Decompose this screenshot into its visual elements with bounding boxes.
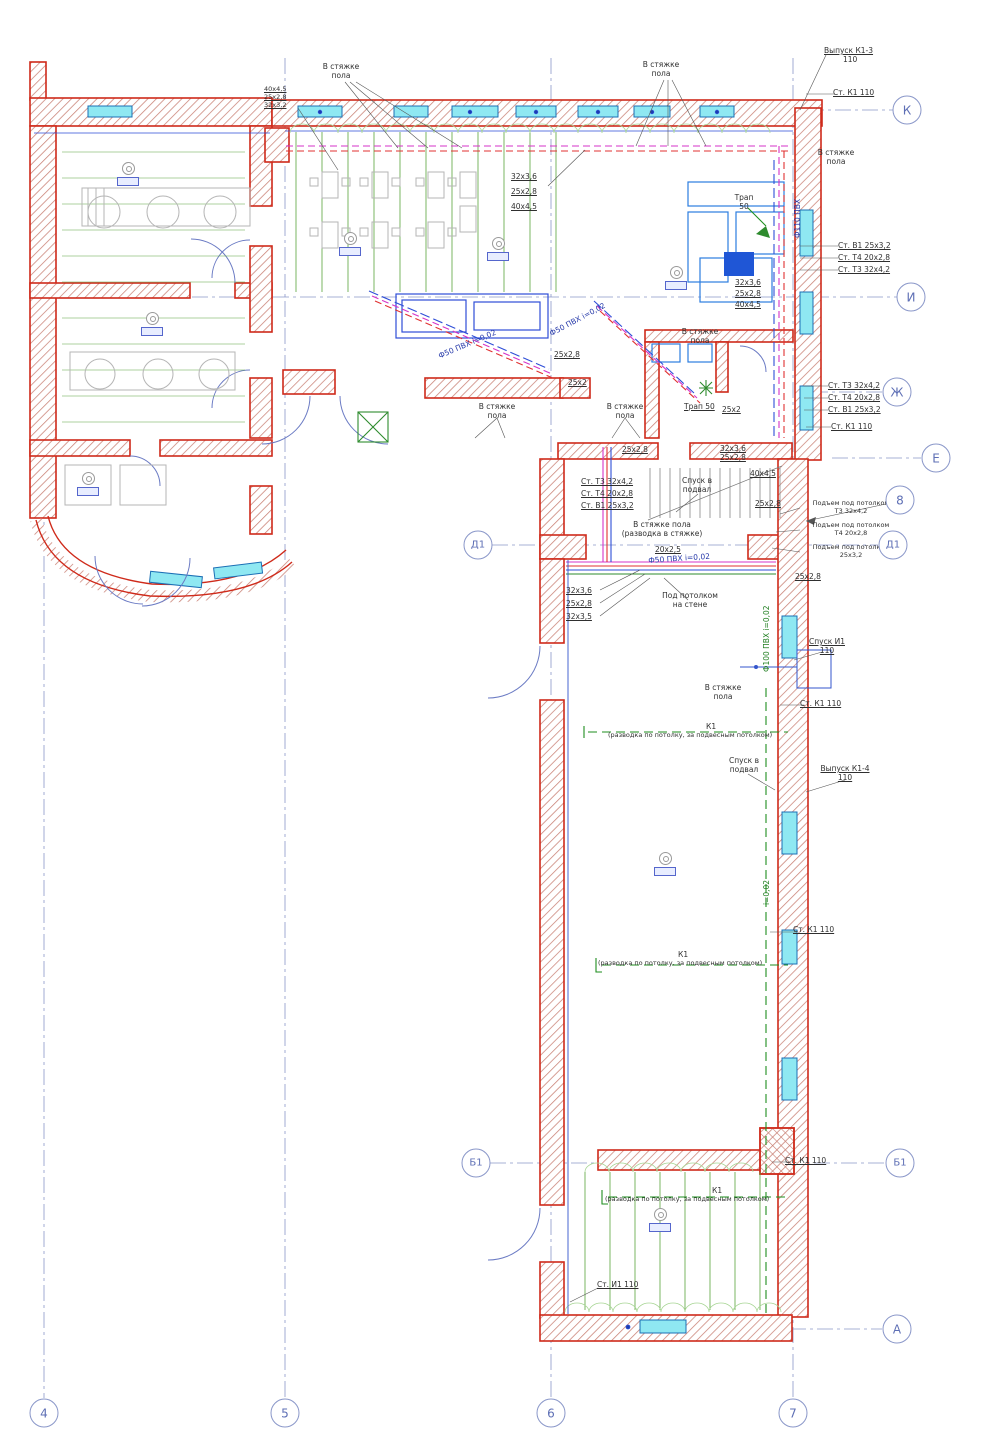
heating-floor-layer [62,124,781,1312]
stairs-layer [648,466,782,520]
floor-plan-canvas: Выпуск К1-3110Ст. К1 110В стяжке пола40х… [0,0,999,1440]
pipes-layer [286,146,789,1314]
windows-layer [88,106,813,1333]
plan-linework [0,0,999,1440]
equipment-layer [396,182,831,688]
